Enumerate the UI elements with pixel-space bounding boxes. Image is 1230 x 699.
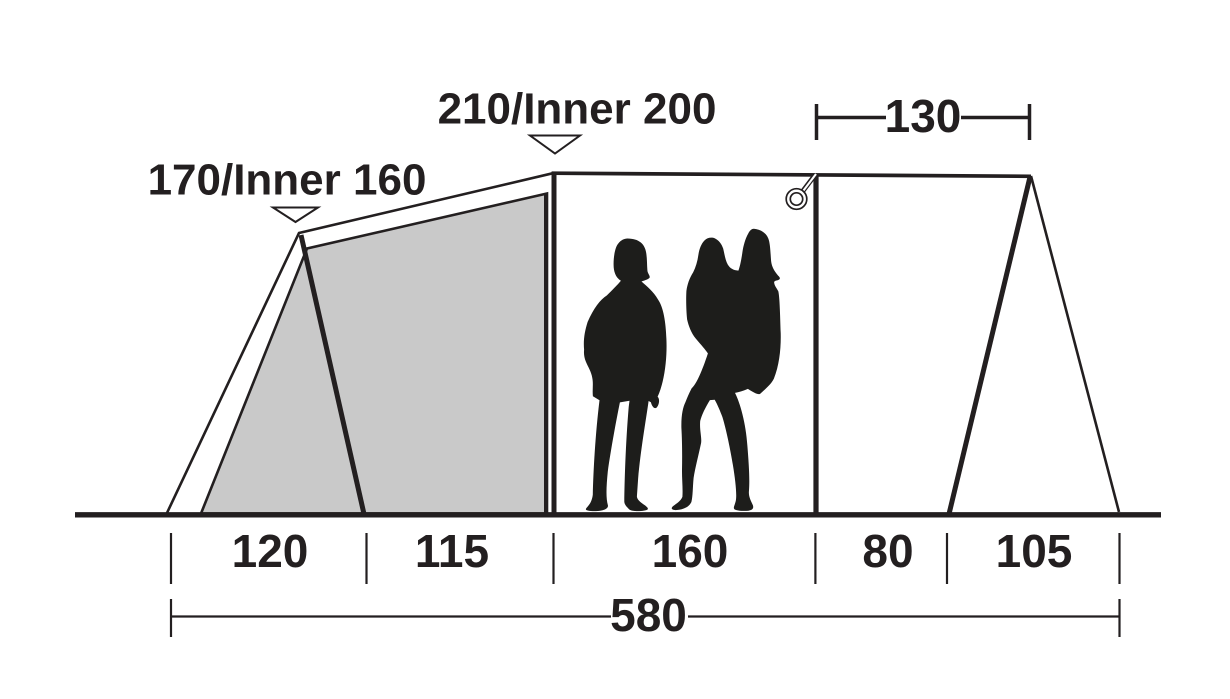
svg-text:160: 160: [652, 525, 729, 577]
svg-text:80: 80: [862, 525, 913, 577]
svg-text:170/Inner 160: 170/Inner 160: [148, 156, 427, 205]
svg-text:130: 130: [885, 90, 962, 142]
svg-text:105: 105: [996, 525, 1073, 577]
svg-text:115: 115: [415, 525, 489, 577]
svg-text:120: 120: [232, 525, 309, 577]
svg-text:580: 580: [610, 589, 687, 641]
svg-text:210/Inner 200: 210/Inner 200: [438, 85, 717, 134]
